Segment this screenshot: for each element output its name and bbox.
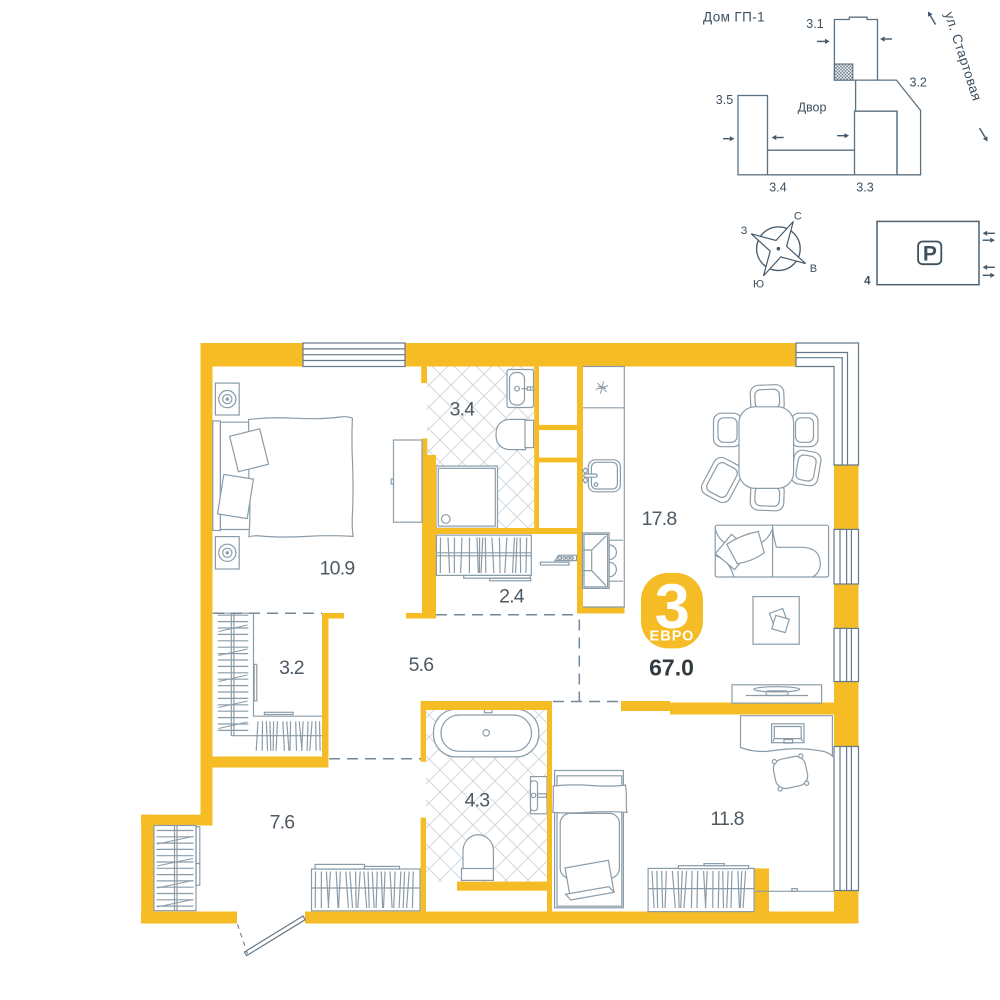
svg-text:3.3: 3.3 bbox=[856, 181, 873, 195]
svg-text:67.0: 67.0 bbox=[649, 655, 694, 681]
svg-text:Дом ГП-1: Дом ГП-1 bbox=[703, 10, 765, 25]
svg-text:ЕВРО: ЕВРО bbox=[650, 629, 695, 645]
svg-text:3.2: 3.2 bbox=[910, 76, 927, 90]
svg-text:3.5: 3.5 bbox=[716, 93, 733, 107]
svg-text:С: С bbox=[794, 210, 802, 222]
svg-text:Двор: Двор bbox=[798, 101, 827, 115]
svg-text:4.3: 4.3 bbox=[465, 790, 490, 812]
svg-text:3.2: 3.2 bbox=[279, 657, 304, 679]
svg-text:Ю: Ю bbox=[753, 279, 764, 291]
svg-text:2.4: 2.4 bbox=[499, 586, 525, 608]
svg-text:3.4: 3.4 bbox=[450, 399, 476, 421]
svg-text:В: В bbox=[810, 263, 817, 275]
svg-text:З: З bbox=[741, 225, 748, 237]
svg-text:7.6: 7.6 bbox=[270, 812, 295, 834]
svg-text:3.1: 3.1 bbox=[806, 17, 823, 31]
svg-text:11.8: 11.8 bbox=[710, 808, 743, 830]
svg-text:5.6: 5.6 bbox=[409, 654, 434, 676]
svg-text:10.9: 10.9 bbox=[320, 558, 355, 580]
svg-text:4: 4 bbox=[864, 276, 871, 288]
svg-text:P: P bbox=[923, 242, 937, 265]
svg-text:3.4: 3.4 bbox=[769, 181, 786, 195]
svg-text:17.8: 17.8 bbox=[642, 508, 677, 530]
